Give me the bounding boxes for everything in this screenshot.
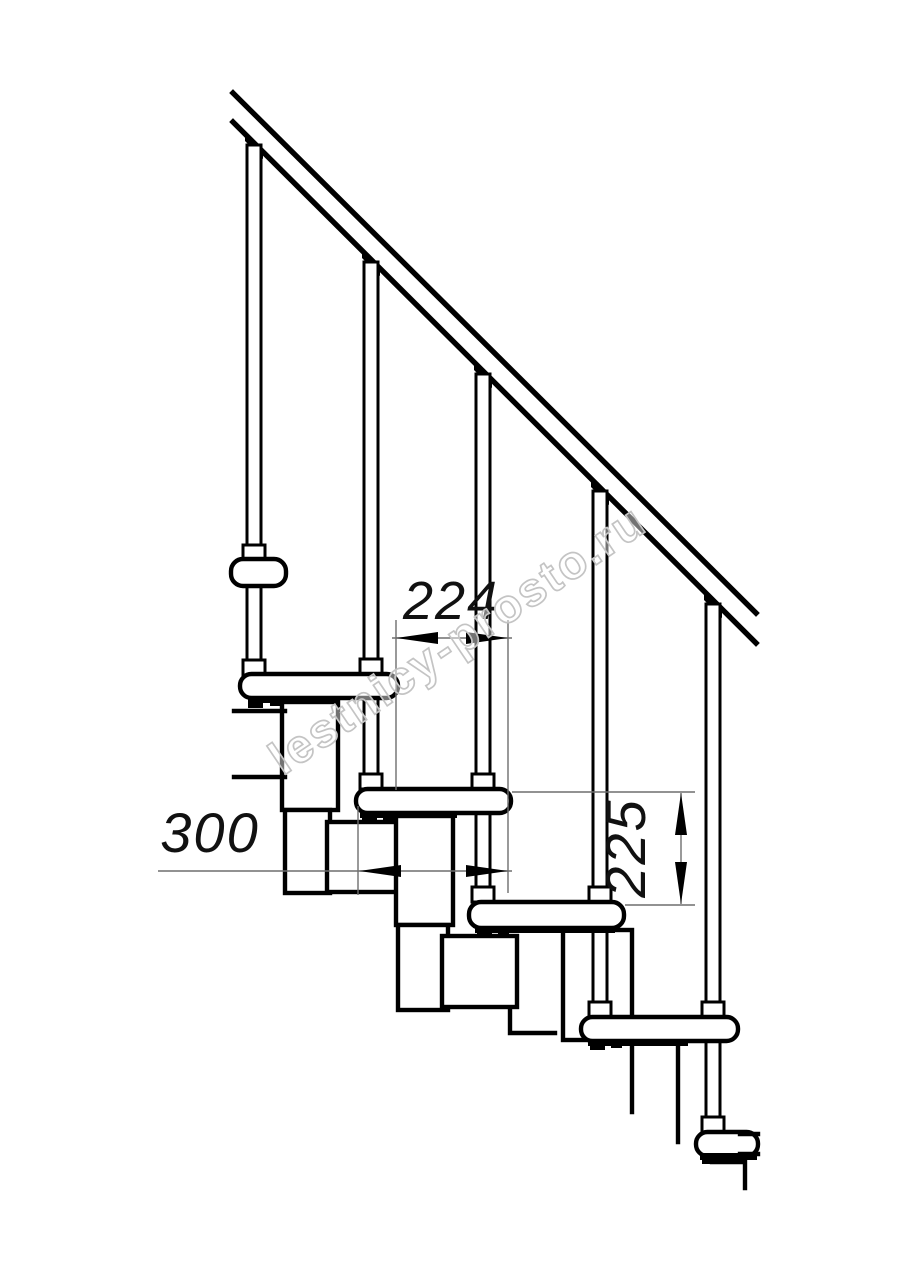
mount-tab xyxy=(702,1156,717,1164)
baluster-collar xyxy=(702,1002,724,1017)
dimension-label-depth: 300 xyxy=(160,801,259,864)
upper-landing-bracket xyxy=(231,559,286,586)
mount-tab xyxy=(383,814,394,820)
mount-tab xyxy=(270,700,281,706)
mount-tab xyxy=(248,700,263,708)
mount-tab xyxy=(362,814,377,822)
support-column-1-lower xyxy=(285,810,330,893)
module-joint-line xyxy=(510,1008,555,1033)
baluster-5 xyxy=(702,592,724,1134)
mount-tab xyxy=(590,1042,605,1050)
tread-3 xyxy=(469,902,624,928)
tread-2 xyxy=(356,789,511,813)
staircase-drawing: 224 300 225 lestnicy-prosto.ru xyxy=(0,0,914,1280)
baluster-collar xyxy=(360,774,382,789)
baluster-collar xyxy=(472,774,494,789)
mount-tab xyxy=(477,929,492,937)
handrail xyxy=(233,93,756,643)
dimension-rise-225: 225 xyxy=(512,792,695,905)
mount-tab xyxy=(722,1156,733,1162)
tread-4 xyxy=(581,1017,738,1041)
mount-bar xyxy=(475,926,615,933)
mount-tab xyxy=(611,1042,622,1048)
baluster-collar xyxy=(472,887,494,902)
dimension-arrow xyxy=(675,862,687,904)
module-box-1 xyxy=(327,822,403,892)
baluster-1 xyxy=(243,133,265,677)
baluster-collar xyxy=(702,1117,724,1132)
handrail-top-line xyxy=(233,93,756,613)
baluster-post xyxy=(247,145,261,677)
staircase-drawing-page: 224 300 225 lestnicy-prosto.ru xyxy=(0,0,914,1280)
baluster-post xyxy=(706,604,720,1134)
handrail-bottom-line xyxy=(233,122,756,643)
dimension-arrow xyxy=(675,793,687,835)
module-box-2 xyxy=(442,936,517,1007)
baluster-collar xyxy=(589,1002,611,1017)
mount-tab xyxy=(498,929,509,935)
dimension-label-rise: 225 xyxy=(594,798,657,898)
floor-profile xyxy=(712,1162,745,1188)
